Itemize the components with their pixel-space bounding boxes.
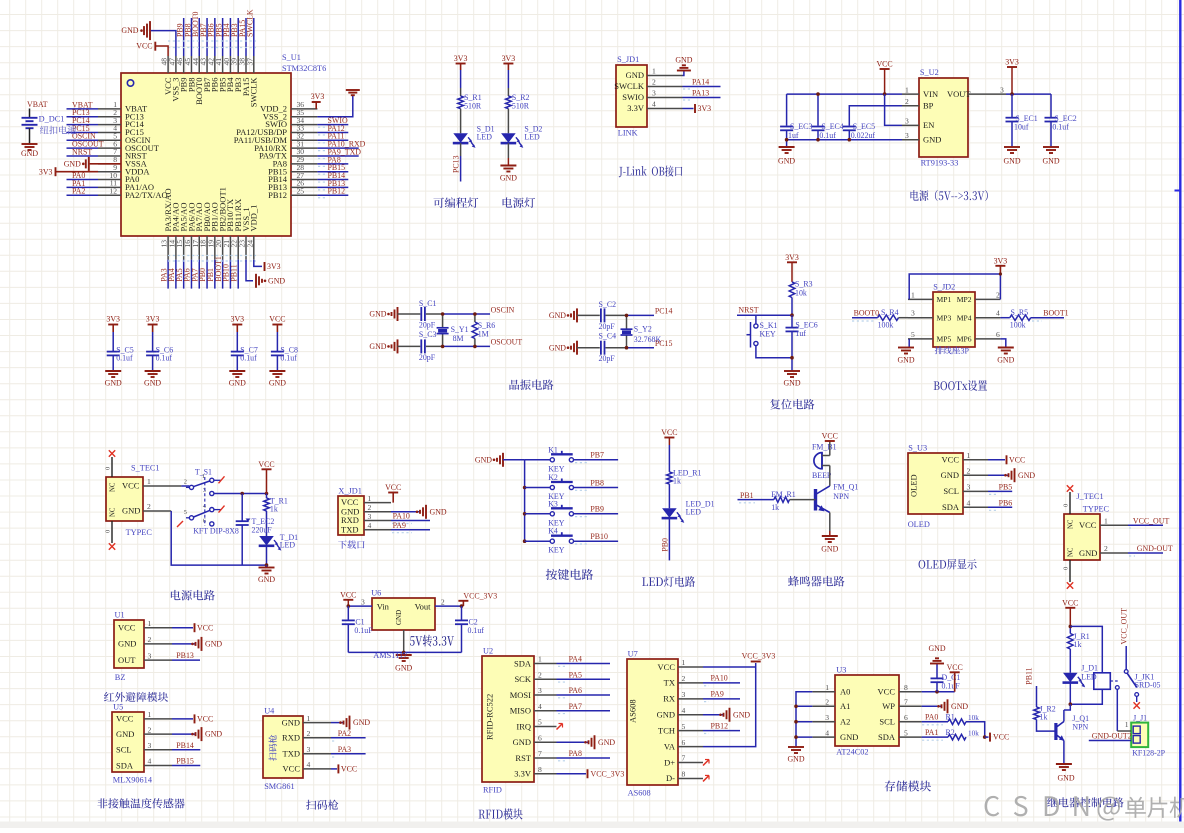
svg-text:VCC: VCC — [658, 662, 676, 672]
svg-text:TXD: TXD — [283, 749, 300, 759]
svg-text:100k: 100k — [878, 320, 894, 329]
svg-text:GND: GND — [675, 56, 692, 65]
svg-text:GND: GND — [118, 639, 136, 649]
svg-text:NC: NC — [1068, 519, 1075, 529]
svg-text:2: 2 — [682, 674, 686, 683]
svg-text:10k: 10k — [968, 729, 979, 737]
svg-text:VCC: VCC — [1009, 455, 1025, 464]
svg-text:2: 2 — [441, 597, 445, 606]
svg-text:PB7: PB7 — [590, 451, 604, 460]
svg-text:PA9: PA9 — [711, 690, 724, 699]
svg-text:24: 24 — [245, 240, 254, 248]
svg-text:PA2: PA2 — [72, 187, 85, 196]
svg-text:3V3: 3V3 — [39, 167, 53, 176]
svg-text:2: 2 — [307, 729, 311, 738]
svg-text:VCC: VCC — [116, 714, 134, 724]
svg-text:RST: RST — [515, 753, 531, 763]
svg-text:2: 2 — [368, 503, 372, 512]
svg-text:BZ: BZ — [115, 673, 126, 682]
svg-text:MP1: MP1 — [937, 295, 952, 304]
svg-text:S_C4: S_C4 — [599, 332, 617, 341]
svg-text:VCC_OUT: VCC_OUT — [1120, 608, 1129, 645]
svg-text:MP3: MP3 — [937, 314, 952, 323]
svg-text:GND: GND — [997, 356, 1014, 365]
svg-text:GND: GND — [598, 738, 615, 747]
svg-text:0.1uF: 0.1uF — [354, 626, 373, 635]
svg-text:S_R5: S_R5 — [1011, 308, 1029, 317]
svg-text:SDA: SDA — [878, 732, 896, 742]
svg-text:PA9: PA9 — [393, 521, 406, 530]
svg-text:RFID: RFID — [483, 786, 502, 795]
svg-text:EN: EN — [923, 120, 934, 130]
svg-text:VCC: VCC — [661, 428, 677, 437]
svg-text:U6: U6 — [371, 589, 381, 598]
svg-text:5: 5 — [538, 718, 542, 727]
svg-text:0: 0 — [105, 467, 112, 470]
svg-text:PA3: PA3 — [338, 745, 351, 754]
svg-text:U5: U5 — [113, 703, 123, 712]
svg-text:SDA: SDA — [942, 502, 960, 512]
svg-text:VCC: VCC — [993, 733, 1009, 742]
svg-text:GND: GND — [258, 575, 275, 584]
svg-text:PA6: PA6 — [569, 686, 582, 695]
svg-text:NPN: NPN — [1072, 723, 1088, 732]
svg-text:4: 4 — [307, 760, 311, 769]
svg-text:3: 3 — [148, 741, 152, 750]
svg-text:1: 1 — [682, 658, 686, 667]
svg-text:20pF: 20pF — [419, 353, 436, 362]
svg-text:GND: GND — [840, 732, 858, 742]
svg-text:PB8: PB8 — [590, 478, 604, 487]
svg-text:VCC_OUT: VCC_OUT — [1133, 516, 1170, 525]
svg-text:1: 1 — [825, 683, 829, 692]
svg-text:WP: WP — [882, 701, 895, 711]
svg-text:PA13: PA13 — [692, 89, 709, 98]
svg-text:PA4: PA4 — [569, 655, 582, 664]
svg-text:AT24C02: AT24C02 — [836, 748, 868, 757]
svg-text:GND: GND — [205, 730, 222, 739]
svg-text:20pF: 20pF — [599, 322, 616, 331]
svg-text:U3: U3 — [836, 666, 846, 675]
svg-text:D+: D+ — [664, 757, 675, 767]
svg-text:KFT DIP-8X8: KFT DIP-8X8 — [193, 527, 239, 536]
svg-text:4: 4 — [825, 728, 829, 737]
svg-text:TXD: TXD — [341, 524, 358, 534]
svg-text:U1: U1 — [115, 611, 125, 620]
svg-text:GND: GND — [122, 506, 140, 516]
svg-text:1: 1 — [307, 714, 311, 723]
svg-text:AMS1117: AMS1117 — [373, 651, 407, 660]
svg-text:MP5: MP5 — [937, 335, 952, 344]
svg-text:PB12: PB12 — [711, 721, 729, 730]
svg-text:1: 1 — [652, 67, 656, 76]
svg-text:S_R3: S_R3 — [795, 280, 813, 289]
svg-text:SWCLK: SWCLK — [246, 9, 255, 37]
svg-text:3.3V: 3.3V — [514, 769, 532, 779]
svg-text:VCC: VCC — [122, 481, 140, 491]
svg-text:3V3: 3V3 — [146, 315, 160, 324]
svg-text:OLED: OLED — [909, 474, 919, 497]
svg-text:3V3: 3V3 — [502, 54, 516, 63]
svg-text:A2: A2 — [840, 717, 850, 727]
svg-text:PB12: PB12 — [268, 190, 287, 200]
svg-text:NRST: NRST — [738, 305, 758, 314]
svg-text:D_DC1: D_DC1 — [39, 115, 65, 124]
svg-text:VCC: VCC — [258, 460, 274, 469]
svg-text:MISO: MISO — [510, 706, 531, 716]
svg-text:1: 1 — [1125, 720, 1129, 729]
svg-text:U2: U2 — [483, 647, 493, 656]
svg-text:GND: GND — [500, 173, 517, 182]
svg-text:TX: TX — [664, 678, 675, 688]
svg-text:GND: GND — [116, 729, 134, 739]
svg-text:X_JD1: X_JD1 — [338, 487, 362, 496]
svg-text:0.022uf: 0.022uf — [851, 131, 876, 140]
svg-text:GND: GND — [268, 276, 285, 285]
svg-text:J_TEC1: J_TEC1 — [1076, 492, 1103, 501]
svg-text:0.1uf: 0.1uf — [240, 354, 257, 363]
svg-text:GND: GND — [1057, 774, 1074, 783]
svg-text:SCL: SCL — [116, 745, 132, 755]
svg-text:20pF: 20pF — [599, 354, 616, 363]
svg-text:3: 3 — [538, 686, 542, 695]
svg-text:VCC: VCC — [1062, 598, 1078, 607]
svg-text:PA10: PA10 — [393, 512, 410, 521]
svg-text:K1: K1 — [548, 445, 558, 454]
svg-text:3: 3 — [905, 131, 909, 140]
svg-text:PA7: PA7 — [569, 702, 582, 711]
svg-text:2: 2 — [967, 466, 971, 475]
svg-text:PA10: PA10 — [711, 674, 728, 683]
svg-text:VIN: VIN — [923, 89, 938, 99]
svg-text:PB11: PB11 — [1025, 667, 1034, 684]
svg-text:0.1uf: 0.1uf — [1052, 123, 1069, 132]
svg-text:KEY: KEY — [548, 546, 565, 555]
svg-text:GND: GND — [657, 710, 675, 720]
svg-text:5: 5 — [911, 330, 915, 339]
svg-text:KEY: KEY — [760, 329, 777, 338]
svg-text:BOOT1: BOOT1 — [1043, 309, 1068, 318]
svg-text:10k: 10k — [795, 289, 807, 298]
svg-text:8: 8 — [682, 770, 686, 779]
svg-text:8: 8 — [904, 683, 908, 692]
svg-text:1uf: 1uf — [788, 131, 799, 140]
svg-text:PB10: PB10 — [590, 532, 608, 541]
svg-text:PB0: PB0 — [661, 538, 670, 552]
svg-text:S_C3: S_C3 — [419, 330, 437, 339]
svg-text:STM32C8T6: STM32C8T6 — [282, 64, 326, 73]
svg-text:GND: GND — [897, 356, 914, 365]
svg-text:U4: U4 — [264, 707, 275, 716]
svg-text:25: 25 — [297, 186, 305, 195]
svg-text:SWCLK: SWCLK — [249, 77, 259, 108]
svg-text:SDA: SDA — [116, 760, 134, 770]
svg-text:0.1uF: 0.1uF — [942, 682, 961, 691]
svg-text:4: 4 — [682, 706, 686, 715]
svg-text:6: 6 — [538, 733, 542, 742]
svg-text:1: 1 — [905, 85, 909, 94]
svg-text:GND: GND — [121, 26, 138, 35]
svg-text:J_D1: J_D1 — [1081, 664, 1098, 673]
svg-text:VCC: VCC — [118, 623, 136, 633]
svg-text:4: 4 — [996, 309, 1000, 318]
svg-text:Vout: Vout — [415, 602, 432, 612]
svg-text:1k: 1k — [1040, 713, 1048, 722]
svg-text:PA5: PA5 — [569, 670, 582, 679]
svg-text:0.1uf: 0.1uf — [819, 131, 836, 140]
svg-text:2: 2 — [996, 290, 1000, 299]
svg-text:KF128-2P: KF128-2P — [1132, 749, 1165, 758]
svg-text:GND: GND — [21, 149, 38, 158]
svg-text:K3: K3 — [548, 499, 558, 508]
svg-text:VCC: VCC — [340, 590, 356, 599]
svg-text:PA8: PA8 — [569, 749, 582, 758]
svg-text:AS608: AS608 — [628, 789, 651, 798]
svg-text:1k: 1k — [270, 505, 278, 514]
svg-text:1: 1 — [368, 494, 372, 503]
svg-text:SCL: SCL — [943, 486, 959, 496]
svg-text:3: 3 — [361, 597, 365, 606]
svg-text:RT9193-33: RT9193-33 — [921, 159, 959, 168]
svg-text:OSCIN: OSCIN — [491, 305, 515, 314]
svg-text:3P: 3P — [961, 347, 970, 356]
svg-text:3: 3 — [967, 483, 971, 492]
svg-text:3: 3 — [148, 651, 152, 660]
svg-text:VCC: VCC — [269, 315, 285, 324]
svg-text:1k: 1k — [1074, 640, 1082, 649]
svg-text:PC14: PC14 — [655, 306, 673, 315]
svg-text:RXD: RXD — [282, 733, 300, 743]
svg-text:PB5: PB5 — [999, 483, 1013, 492]
svg-text:1uf: 1uf — [795, 329, 806, 338]
svg-text:GND: GND — [951, 702, 968, 711]
svg-text:2: 2 — [538, 670, 542, 679]
svg-text:NPN: NPN — [833, 492, 849, 501]
svg-text:TYPEC: TYPEC — [1083, 505, 1110, 514]
svg-text:1M: 1M — [478, 330, 489, 339]
svg-text:GND: GND — [1003, 157, 1020, 166]
svg-text:7: 7 — [904, 698, 908, 707]
svg-text:PB11: PB11 — [229, 264, 238, 281]
svg-text:GND: GND — [787, 755, 804, 764]
svg-text:220uF: 220uF — [252, 525, 273, 534]
svg-text:SWCLK: SWCLK — [614, 81, 645, 91]
svg-text:RX: RX — [663, 694, 675, 704]
svg-text:PA2: PA2 — [338, 729, 351, 738]
svg-text:VDD_1: VDD_1 — [249, 205, 259, 232]
svg-text:GND: GND — [549, 311, 566, 320]
svg-text:GND: GND — [783, 379, 800, 388]
svg-text:3: 3 — [307, 745, 311, 754]
svg-text:GND: GND — [105, 379, 122, 388]
svg-text:VCC_3V3: VCC_3V3 — [591, 769, 625, 778]
svg-text:VCC: VCC — [1079, 520, 1097, 530]
svg-text:1: 1 — [147, 477, 151, 486]
svg-text:TYPEC: TYPEC — [126, 528, 153, 537]
svg-text:PA14: PA14 — [692, 78, 709, 87]
svg-text:VCC: VCC — [385, 483, 401, 492]
svg-text:FM_R1: FM_R1 — [771, 490, 796, 499]
svg-text:PA1: PA1 — [925, 728, 938, 737]
svg-text:GND: GND — [821, 545, 838, 554]
svg-text:3: 3 — [911, 309, 915, 318]
svg-text:GND: GND — [395, 610, 403, 625]
svg-text:PC15: PC15 — [655, 339, 673, 348]
svg-text:7: 7 — [538, 749, 542, 758]
svg-text:IRQ: IRQ — [516, 721, 531, 731]
svg-text:S_U3: S_U3 — [908, 444, 927, 453]
svg-text:VCC: VCC — [942, 455, 960, 465]
svg-text:5: 5 — [904, 728, 908, 737]
svg-text:D-: D- — [666, 773, 675, 783]
svg-text:PB9: PB9 — [590, 505, 604, 514]
svg-text:OUT: OUT — [118, 655, 136, 665]
svg-text:GND: GND — [369, 310, 386, 319]
svg-text:3V3: 3V3 — [1005, 58, 1019, 67]
svg-text:4: 4 — [538, 702, 542, 711]
svg-text:PC13: PC13 — [452, 155, 461, 173]
svg-text:GND: GND — [229, 379, 246, 388]
svg-text:SDA: SDA — [514, 658, 532, 668]
svg-text:NC: NC — [110, 482, 117, 492]
svg-text:S_U1: S_U1 — [282, 53, 301, 62]
svg-text:K4: K4 — [548, 527, 558, 536]
svg-text:6: 6 — [904, 713, 908, 722]
svg-text:1: 1 — [148, 710, 152, 719]
svg-text:NRST: NRST — [72, 147, 92, 156]
svg-text:GND: GND — [475, 455, 492, 464]
svg-text:S_TEC1: S_TEC1 — [131, 464, 160, 473]
svg-text:VCC: VCC — [341, 765, 357, 774]
svg-text:6: 6 — [682, 738, 686, 747]
svg-text:3: 3 — [1000, 85, 1004, 94]
svg-text:5: 5 — [184, 509, 187, 516]
svg-text:PB13: PB13 — [176, 651, 194, 660]
svg-text:PB12: PB12 — [328, 187, 346, 196]
svg-text:J_J1: J_J1 — [1133, 714, 1147, 723]
svg-text:GND: GND — [353, 718, 370, 727]
svg-text:VBAT: VBAT — [27, 100, 48, 109]
svg-text:S_R4: S_R4 — [881, 308, 899, 317]
svg-text:SMG861: SMG861 — [264, 782, 294, 791]
svg-text:2: 2 — [148, 635, 152, 644]
svg-text:FM_B1: FM_B1 — [812, 443, 837, 452]
svg-text:3V3: 3V3 — [231, 315, 245, 324]
svg-text:VCC: VCC — [197, 715, 213, 724]
svg-text:S_C1: S_C1 — [419, 299, 437, 308]
svg-text:3: 3 — [368, 512, 372, 521]
svg-text:VCC: VCC — [947, 663, 963, 672]
svg-text:3V3: 3V3 — [267, 262, 281, 271]
svg-text:GND: GND — [395, 664, 412, 673]
svg-text:VOUT: VOUT — [947, 89, 971, 99]
svg-text:SCK: SCK — [514, 674, 531, 684]
svg-text:6: 6 — [996, 330, 1000, 339]
svg-text:MP6: MP6 — [957, 335, 972, 344]
svg-text:S_U2: S_U2 — [920, 68, 939, 77]
svg-text:LED: LED — [686, 508, 702, 517]
svg-text:BP: BP — [923, 101, 934, 111]
svg-text:LED: LED — [280, 541, 296, 550]
svg-text:OLED: OLED — [908, 520, 930, 529]
svg-text:PB1: PB1 — [740, 491, 754, 500]
svg-text:3: 3 — [825, 713, 829, 722]
svg-text:SCL: SCL — [879, 717, 895, 727]
svg-text:GND: GND — [269, 379, 286, 388]
svg-text:1: 1 — [967, 451, 971, 460]
svg-text:3: 3 — [905, 117, 909, 126]
svg-text:3.3V: 3.3V — [627, 103, 645, 113]
svg-text:S_C2: S_C2 — [599, 300, 617, 309]
svg-text:A1: A1 — [840, 701, 850, 711]
svg-text:8: 8 — [538, 765, 542, 774]
svg-text:GND: GND — [923, 135, 941, 145]
svg-text:SRD-05: SRD-05 — [1135, 681, 1161, 690]
svg-text:BEEP: BEEP — [812, 471, 832, 480]
svg-text:S_Y2: S_Y2 — [634, 325, 652, 334]
svg-text:GND: GND — [64, 159, 81, 168]
svg-text:1: 1 — [911, 290, 915, 299]
svg-text:SWIO: SWIO — [622, 92, 644, 102]
svg-text:MOSI: MOSI — [510, 690, 531, 700]
svg-text:GND-OUT: GND-OUT — [1137, 544, 1173, 553]
svg-text:GND: GND — [1079, 548, 1097, 558]
svg-text:PB14: PB14 — [176, 741, 194, 750]
svg-text:NC: NC — [1068, 547, 1075, 557]
svg-text:MP4: MP4 — [957, 314, 972, 323]
svg-text:KEY: KEY — [548, 464, 565, 473]
svg-text:4: 4 — [148, 757, 152, 766]
svg-text:VCC: VCC — [878, 687, 896, 697]
svg-text:MLX90614: MLX90614 — [113, 776, 153, 785]
svg-text:U7: U7 — [628, 650, 638, 659]
svg-text:2: 2 — [147, 502, 151, 511]
svg-text:GND: GND — [549, 343, 566, 352]
svg-text:LED: LED — [524, 132, 540, 141]
svg-text:GND: GND — [778, 157, 795, 166]
svg-text:5: 5 — [682, 722, 686, 731]
svg-text:3V3: 3V3 — [311, 92, 325, 101]
svg-text:LINK: LINK — [618, 129, 638, 138]
svg-text:3V3: 3V3 — [454, 54, 468, 63]
svg-text:NC: NC — [110, 507, 117, 517]
svg-text:A0: A0 — [840, 687, 850, 697]
svg-text:0.1uf: 0.1uf — [280, 354, 297, 363]
svg-text:VCC: VCC — [876, 60, 892, 69]
svg-text:20pF: 20pF — [419, 321, 436, 330]
svg-text:PA0: PA0 — [925, 712, 938, 721]
svg-text:0: 0 — [1063, 504, 1070, 507]
svg-text:Vin: Vin — [377, 602, 390, 612]
svg-text:OSCOUT: OSCOUT — [491, 338, 523, 347]
svg-text:4: 4 — [368, 521, 372, 530]
svg-text:S_JD1: S_JD1 — [617, 55, 639, 64]
svg-text:VCC: VCC — [197, 623, 213, 632]
svg-text:0.1uf: 0.1uf — [156, 354, 173, 363]
svg-text:0: 0 — [105, 530, 112, 533]
svg-text:1: 1 — [148, 619, 152, 628]
svg-text:100k: 100k — [1010, 320, 1026, 329]
svg-text:10k: 10k — [968, 714, 979, 722]
svg-text:VCC: VCC — [136, 41, 152, 50]
svg-text:VCC: VCC — [283, 764, 301, 774]
svg-text:0: 0 — [1063, 567, 1070, 570]
svg-text:GND: GND — [282, 717, 300, 727]
svg-text:2: 2 — [1104, 544, 1108, 553]
svg-text:MP2: MP2 — [957, 295, 972, 304]
svg-text:S_JD2: S_JD2 — [933, 283, 955, 292]
svg-text:GND: GND — [513, 737, 531, 747]
